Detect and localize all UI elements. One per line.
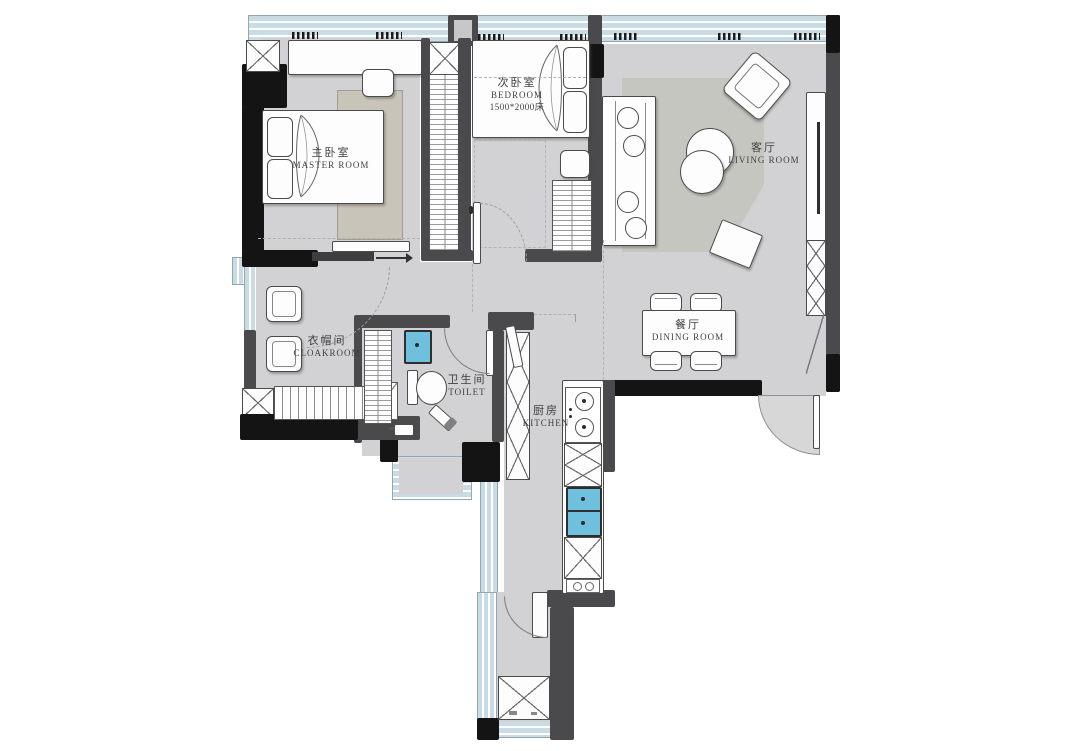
toilet-valve bbox=[394, 424, 414, 436]
master-bed-pillow bbox=[267, 159, 293, 199]
wall-closet-strip-cap bbox=[421, 250, 473, 261]
curtain-mark-icon bbox=[376, 32, 402, 39]
sofa-cushion bbox=[623, 135, 645, 157]
room-label-living: 客厅 LIVING ROOM bbox=[728, 141, 799, 167]
washing-machine bbox=[498, 676, 550, 720]
bedroom2-bed-pillow bbox=[563, 91, 587, 133]
sofa-front-line bbox=[645, 103, 646, 239]
room-label-master-zh: 主卧室 bbox=[293, 146, 370, 160]
stove-knob bbox=[569, 408, 572, 411]
washer-detail bbox=[531, 712, 537, 715]
burner-icon bbox=[575, 418, 594, 437]
door-handle-icon bbox=[469, 206, 473, 214]
washer-detail bbox=[509, 711, 517, 715]
floor-toilet-bay bbox=[399, 458, 463, 494]
sofa-back-line bbox=[615, 101, 616, 241]
wall-kitchen-bottom-black bbox=[477, 718, 499, 740]
wall-right-black-top bbox=[826, 15, 840, 53]
chair-line bbox=[655, 298, 677, 299]
room-label-bedroom2-zh: 次卧室 bbox=[490, 76, 545, 90]
valve-stem bbox=[389, 427, 395, 430]
bedroom2-bed-pillow bbox=[563, 47, 587, 89]
room-label-bedroom2-en: BEDROOM bbox=[490, 90, 545, 102]
room-label-kitchen-en: KITCHEN bbox=[523, 418, 570, 430]
floor-dash-master bbox=[258, 238, 420, 239]
room-label-kitchen-zh: 厨房 bbox=[523, 404, 570, 418]
kitchen-opening-tick bbox=[575, 314, 576, 322]
stove-icon bbox=[565, 387, 601, 443]
wall-cloakroom-left bbox=[244, 330, 256, 390]
curtain-mark-icon bbox=[718, 33, 742, 40]
curtain-mark-icon bbox=[614, 33, 638, 40]
floor-plan: 主卧室 MASTER ROOM 次卧室 BEDROOM 1500*2000床 客… bbox=[0, 0, 1080, 751]
living-sofa bbox=[602, 96, 656, 246]
bedroom2-wardrobe bbox=[552, 180, 592, 252]
arrow-head-icon bbox=[406, 253, 413, 263]
room-label-dining-zh: 餐厅 bbox=[652, 318, 724, 332]
cloakroom-chair bbox=[266, 286, 302, 322]
zone-dash-corridor bbox=[472, 264, 473, 312]
room-label-dining-en: DINING ROOM bbox=[652, 332, 724, 344]
toilet-bowl bbox=[416, 371, 447, 405]
armchair-seat-line bbox=[733, 62, 781, 110]
room-label-bedroom2-note: 1500*2000床 bbox=[490, 102, 545, 114]
window-kitchen-left-upper bbox=[480, 478, 498, 594]
living-tall-cabinet bbox=[806, 240, 826, 316]
toilet-shelf bbox=[364, 330, 392, 424]
sliding-door-track bbox=[312, 252, 374, 261]
master-nightstand bbox=[362, 69, 394, 97]
burner-center bbox=[582, 399, 586, 403]
meter-dial-icon bbox=[585, 582, 594, 591]
room-label-bedroom2: 次卧室 BEDROOM 1500*2000床 bbox=[490, 76, 545, 114]
wall-kitchen-step-vertical bbox=[550, 607, 574, 740]
burner-icon bbox=[575, 392, 594, 411]
dining-chair bbox=[690, 351, 722, 371]
sofa-cushion bbox=[617, 107, 639, 129]
kitchen-sink bbox=[566, 487, 602, 537]
room-label-master-en: MASTER ROOM bbox=[293, 160, 370, 172]
window-kitchen-left-lower bbox=[477, 592, 497, 722]
wall-right-black-bottom bbox=[826, 354, 840, 392]
room-label-dining: 餐厅 DINING ROOM bbox=[652, 318, 724, 344]
wall-right-exterior bbox=[826, 15, 840, 392]
sofa-cushion bbox=[617, 191, 639, 213]
wall-toilet-bottom-right-black bbox=[462, 442, 500, 482]
wall-closet-strip-right bbox=[458, 38, 471, 252]
sink-drain-icon bbox=[581, 497, 585, 501]
tv-cabinet bbox=[806, 92, 826, 242]
chair-seat-line bbox=[272, 291, 296, 317]
room-label-living-zh: 客厅 bbox=[728, 141, 799, 155]
sink-drain-icon bbox=[581, 521, 585, 525]
coffee-table-small bbox=[680, 150, 724, 194]
sliding-door-arrow bbox=[376, 257, 406, 259]
wall-master-left-strip bbox=[242, 106, 264, 252]
sink-divider bbox=[568, 510, 600, 512]
chair-line bbox=[695, 298, 717, 299]
room-label-kitchen: 厨房 KITCHEN bbox=[523, 404, 570, 430]
tv-icon bbox=[817, 122, 820, 214]
toilet-sink bbox=[404, 330, 432, 364]
room-label-cloakroom-en: CLOAKROOM bbox=[293, 348, 360, 360]
entry-door-swing bbox=[758, 395, 820, 455]
column-master-corner bbox=[246, 40, 280, 72]
master-bed-pillow bbox=[267, 117, 293, 157]
counter-hatch bbox=[564, 443, 602, 487]
room-label-cloakroom: 衣帽间 CLOAKROOM bbox=[293, 334, 360, 360]
dining-chair bbox=[650, 351, 682, 371]
entry-door-leaf bbox=[813, 395, 820, 449]
room-label-living-en: LIVING ROOM bbox=[728, 155, 799, 167]
sofa-cushion bbox=[625, 217, 647, 239]
floor-entry-strip bbox=[762, 381, 826, 396]
wall-dining-bottom bbox=[602, 380, 762, 396]
closet-strip-shelving bbox=[429, 74, 461, 252]
room-label-cloakroom-zh: 衣帽间 bbox=[293, 334, 360, 348]
column-closet-strip bbox=[429, 42, 461, 75]
bedroom2-nightstand bbox=[560, 150, 590, 178]
kitchen-fridge bbox=[564, 537, 602, 579]
sliding-door-panel bbox=[332, 241, 410, 252]
window-kitchen-bottom bbox=[497, 720, 553, 738]
burner-center bbox=[582, 425, 586, 429]
master-wardrobe bbox=[288, 40, 422, 75]
kitchen-opening-dash bbox=[534, 314, 576, 315]
sink-drain-icon bbox=[415, 343, 419, 347]
room-label-toilet-en: TOILET bbox=[448, 387, 487, 399]
chair-line bbox=[695, 364, 717, 365]
room-label-toilet-zh: 卫生间 bbox=[448, 373, 487, 387]
curtain-mark-icon bbox=[292, 32, 318, 39]
room-label-toilet: 卫生间 TOILET bbox=[448, 373, 487, 399]
cloakroom-dresser bbox=[274, 386, 370, 420]
wall-master-bottom bbox=[242, 250, 318, 267]
stove-knob bbox=[569, 415, 572, 418]
meter-dial-icon bbox=[573, 582, 582, 591]
wall-bedroom2-living-black bbox=[588, 44, 604, 78]
room-label-master: 主卧室 MASTER ROOM bbox=[293, 146, 370, 172]
kitchen-meter bbox=[566, 579, 600, 593]
chair-line bbox=[655, 364, 677, 365]
zone-dash-dining bbox=[603, 240, 604, 380]
chair-seat-line bbox=[272, 341, 296, 367]
curtain-mark-icon bbox=[794, 33, 820, 40]
angled-wall-line bbox=[806, 314, 824, 374]
